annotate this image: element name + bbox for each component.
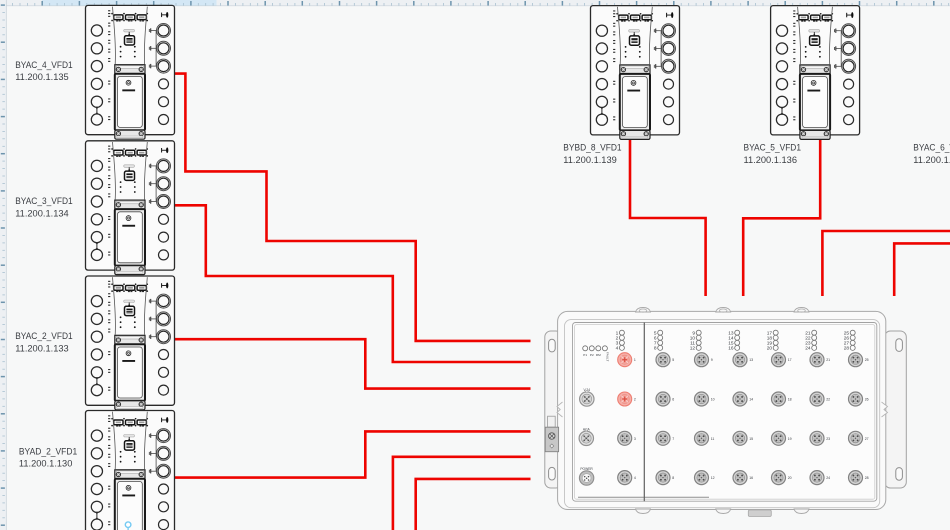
svg-text:11.200.1.130: 11.200.1.130	[19, 459, 73, 470]
svg-text:25: 25	[865, 358, 869, 362]
svg-text:23: 23	[826, 437, 830, 441]
svg-text:4: 4	[634, 476, 636, 480]
svg-text:19: 19	[788, 437, 792, 441]
svg-text:FAULT: FAULT	[605, 352, 609, 362]
svg-text:10: 10	[711, 398, 715, 402]
svg-text:27: 27	[865, 437, 869, 441]
svg-text:RM: RM	[596, 353, 601, 357]
svg-text:11: 11	[711, 437, 715, 441]
svg-text:2: 2	[634, 398, 636, 402]
svg-text:28: 28	[865, 476, 869, 480]
svg-text:4: 4	[616, 346, 619, 352]
svg-text:6: 6	[672, 398, 674, 402]
svg-text:12: 12	[711, 476, 715, 480]
svg-text:1: 1	[634, 358, 636, 362]
svg-text:8: 8	[654, 346, 657, 352]
svg-text:28: 28	[844, 346, 850, 352]
svg-text:20: 20	[788, 476, 792, 480]
svg-text:18: 18	[788, 398, 792, 402]
svg-text:11.200.1.137: 11.200.1.137	[913, 155, 950, 166]
svg-text:14: 14	[749, 398, 753, 402]
svg-text:7: 7	[672, 437, 674, 441]
svg-text:BYAC_2_VFD1: BYAC_2_VFD1	[15, 331, 72, 342]
svg-text:5: 5	[672, 358, 674, 362]
svg-text:BYAC_3_VFD1: BYAC_3_VFD1	[15, 196, 72, 207]
svg-text:BYAC_5_VFD1: BYAC_5_VFD1	[744, 143, 802, 154]
svg-text:P2: P2	[590, 353, 594, 357]
svg-text:16: 16	[728, 346, 734, 352]
svg-text:3: 3	[634, 437, 636, 441]
svg-text:11.200.1.135: 11.200.1.135	[15, 72, 68, 83]
svg-text:24: 24	[805, 346, 811, 352]
svg-text:15: 15	[749, 437, 753, 441]
svg-text:11.200.1.136: 11.200.1.136	[744, 155, 798, 166]
svg-text:BYAC_6_VFD1: BYAC_6_VFD1	[913, 143, 950, 154]
svg-text:11.200.1.134: 11.200.1.134	[15, 208, 69, 219]
svg-text:P1: P1	[583, 353, 587, 357]
svg-text:20: 20	[767, 346, 773, 352]
svg-text:21: 21	[826, 358, 830, 362]
svg-text:26: 26	[865, 398, 869, 402]
svg-text:BYBD_8_VFD1: BYBD_8_VFD1	[563, 143, 621, 154]
svg-text:BYAD_2_VFD1: BYAD_2_VFD1	[19, 446, 77, 457]
svg-text:12: 12	[690, 346, 696, 352]
svg-text:9: 9	[711, 358, 713, 362]
svg-text:BYAC_4_VFD1: BYAC_4_VFD1	[15, 60, 72, 71]
svg-text:11.200.1.139: 11.200.1.139	[563, 155, 617, 166]
svg-text:24: 24	[826, 476, 830, 480]
svg-text:8: 8	[672, 476, 674, 480]
svg-text:11.200.1.133: 11.200.1.133	[15, 343, 68, 354]
svg-text:16: 16	[749, 476, 753, 480]
svg-text:22: 22	[826, 398, 830, 402]
svg-text:17: 17	[788, 358, 792, 362]
svg-text:13: 13	[749, 358, 753, 362]
